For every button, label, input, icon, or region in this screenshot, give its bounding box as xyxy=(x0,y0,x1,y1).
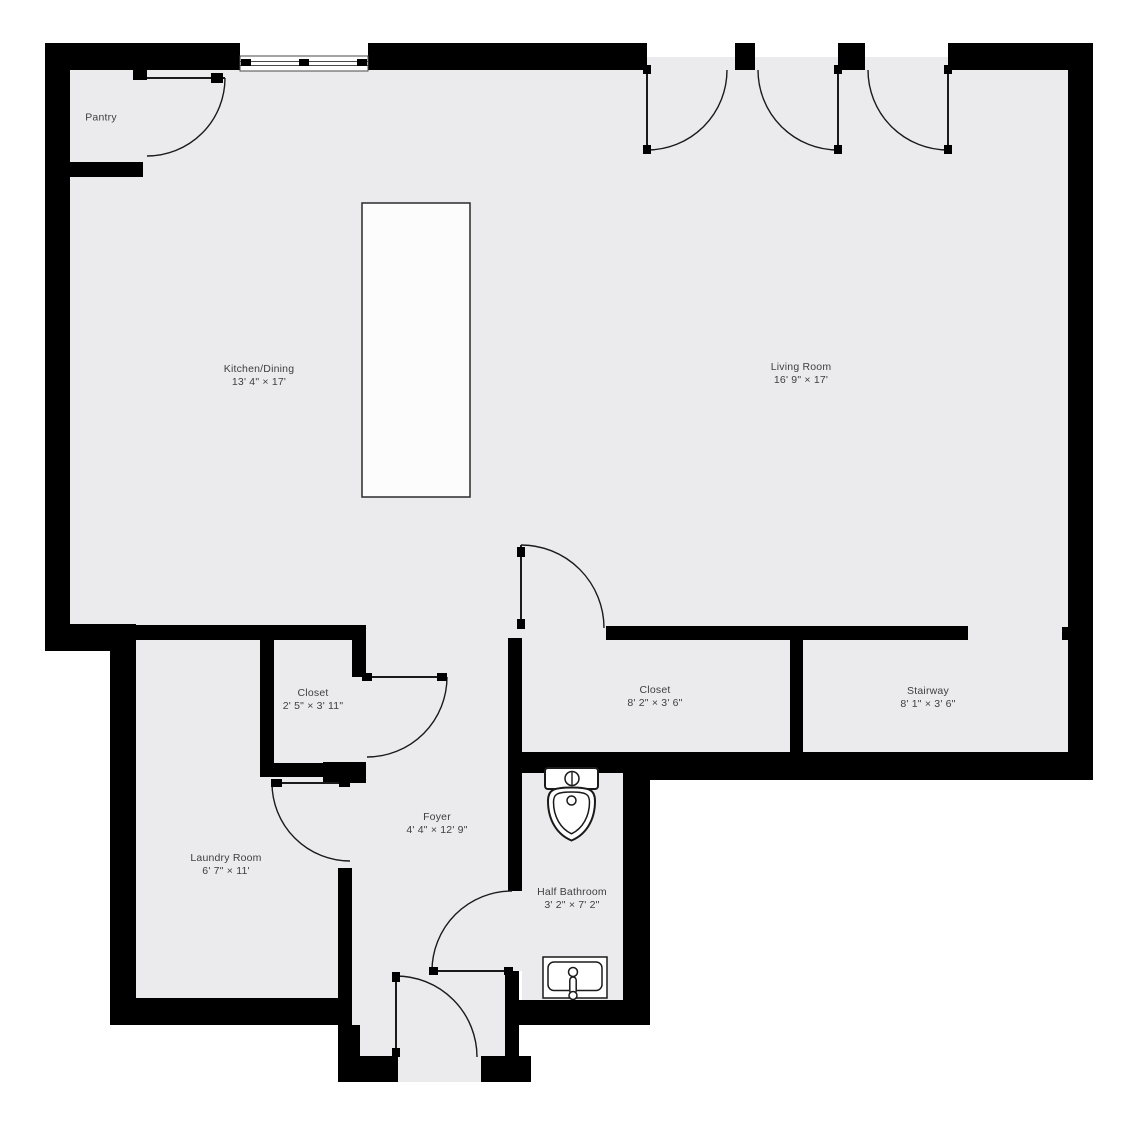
room-name: Living Room xyxy=(771,361,832,374)
room-name: Foyer xyxy=(406,811,467,824)
room-dimensions: 3' 2" × 7' 2" xyxy=(537,899,607,912)
room-label-closet-small: Closet2' 5" × 3' 11" xyxy=(283,687,343,713)
room-label-pantry: Pantry xyxy=(85,112,117,125)
floor-plan: PantryKitchen/Dining13' 4" × 17'Living R… xyxy=(0,0,1140,1126)
room-labels: PantryKitchen/Dining13' 4" × 17'Living R… xyxy=(0,0,1140,1126)
room-dimensions: 4' 4" × 12' 9" xyxy=(406,824,467,837)
room-label-kitchen-dining: Kitchen/Dining13' 4" × 17' xyxy=(224,363,295,389)
room-name: Laundry Room xyxy=(190,852,261,865)
room-label-laundry-room: Laundry Room6' 7" × 11' xyxy=(190,852,261,878)
room-label-living-room: Living Room16' 9" × 17' xyxy=(771,361,832,387)
room-dimensions: 8' 1" × 3' 6" xyxy=(900,698,955,711)
room-name: Pantry xyxy=(85,112,117,125)
room-name: Kitchen/Dining xyxy=(224,363,295,376)
room-label-stairway: Stairway8' 1" × 3' 6" xyxy=(900,685,955,711)
room-name: Half Bathroom xyxy=(537,886,607,899)
room-dimensions: 6' 7" × 11' xyxy=(190,865,261,878)
room-name: Stairway xyxy=(900,685,955,698)
room-name: Closet xyxy=(627,684,682,697)
room-dimensions: 8' 2" × 3' 6" xyxy=(627,697,682,710)
room-dimensions: 2' 5" × 3' 11" xyxy=(283,700,343,713)
room-dimensions: 13' 4" × 17' xyxy=(224,376,295,389)
room-dimensions: 16' 9" × 17' xyxy=(771,374,832,387)
room-label-foyer: Foyer4' 4" × 12' 9" xyxy=(406,811,467,837)
room-name: Closet xyxy=(283,687,343,700)
room-label-half-bathroom: Half Bathroom3' 2" × 7' 2" xyxy=(537,886,607,912)
room-label-closet-hall: Closet8' 2" × 3' 6" xyxy=(627,684,682,710)
